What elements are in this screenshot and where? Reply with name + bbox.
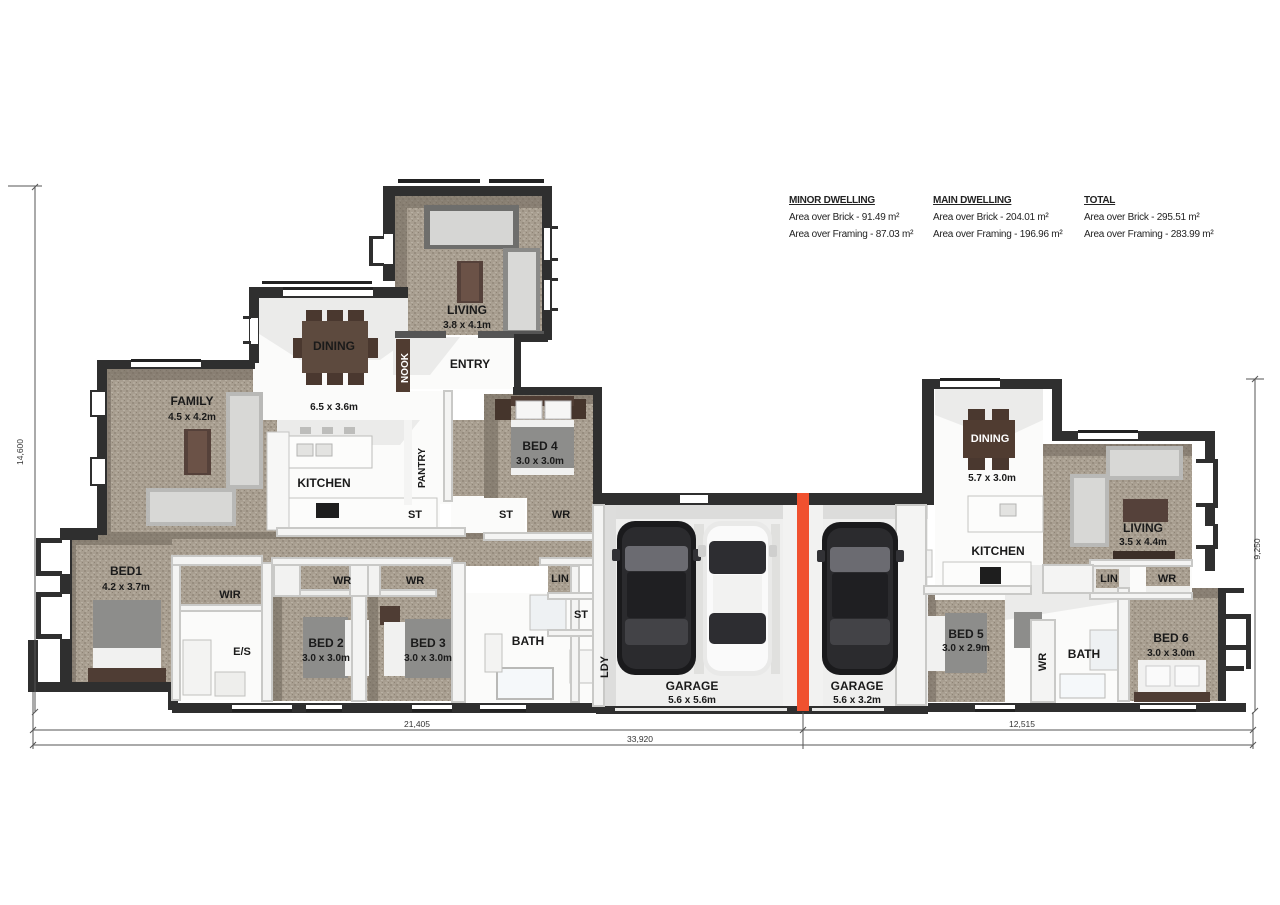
svg-text:4.2 x 3.7m: 4.2 x 3.7m <box>102 582 150 593</box>
svg-text:WR: WR <box>552 509 570 521</box>
svg-text:Area over Framing - 196.96 m²: Area over Framing - 196.96 m² <box>933 229 1063 240</box>
svg-text:3.0 x 3.0m: 3.0 x 3.0m <box>302 653 350 664</box>
svg-text:4.5 x 4.2m: 4.5 x 4.2m <box>168 412 216 423</box>
svg-text:BATH: BATH <box>512 634 544 648</box>
svg-text:3.0 x 3.0m: 3.0 x 3.0m <box>404 653 452 664</box>
svg-text:Area over Brick - 295.51 m²: Area over Brick - 295.51 m² <box>1084 212 1200 223</box>
svg-text:TOTAL: TOTAL <box>1084 195 1115 206</box>
svg-text:E/S: E/S <box>233 646 251 658</box>
svg-text:14,600: 14,600 <box>15 439 25 465</box>
svg-text:GARAGE: GARAGE <box>831 679 884 693</box>
svg-text:9,250: 9,250 <box>1252 538 1262 560</box>
svg-text:BED 3: BED 3 <box>410 636 446 650</box>
svg-text:WR: WR <box>333 575 351 587</box>
svg-text:LIVING: LIVING <box>1123 521 1163 535</box>
svg-text:BED 6: BED 6 <box>1153 631 1189 645</box>
svg-text:ST: ST <box>574 609 588 621</box>
svg-text:KITCHEN: KITCHEN <box>971 544 1024 558</box>
svg-text:ST: ST <box>499 509 513 521</box>
svg-text:12,515: 12,515 <box>1009 719 1035 729</box>
svg-text:MAIN DWELLING: MAIN DWELLING <box>933 195 1012 206</box>
svg-text:5.7 x 3.0m: 5.7 x 3.0m <box>968 473 1016 484</box>
svg-text:ENTRY: ENTRY <box>450 357 490 371</box>
svg-text:MINOR DWELLING: MINOR DWELLING <box>789 195 875 206</box>
svg-text:NOOK: NOOK <box>400 352 411 383</box>
svg-text:21,405: 21,405 <box>404 719 430 729</box>
svg-text:3.0 x 3.0m: 3.0 x 3.0m <box>516 456 564 467</box>
svg-text:BED 4: BED 4 <box>522 439 558 453</box>
svg-text:3.8 x 4.1m: 3.8 x 4.1m <box>443 320 491 331</box>
svg-text:PANTRY: PANTRY <box>417 448 428 488</box>
svg-text:5.6 x 3.2m: 5.6 x 3.2m <box>833 695 881 706</box>
svg-text:DINING: DINING <box>971 433 1010 445</box>
svg-text:6.5 x 3.6m: 6.5 x 3.6m <box>310 402 358 413</box>
svg-text:LDY: LDY <box>599 655 611 678</box>
svg-text:Area over Brick - 204.01 m²: Area over Brick - 204.01 m² <box>933 212 1049 223</box>
svg-text:DINING: DINING <box>313 339 355 353</box>
svg-text:WR: WR <box>406 575 424 587</box>
svg-text:BED1: BED1 <box>110 564 142 578</box>
svg-text:KITCHEN: KITCHEN <box>297 476 350 490</box>
svg-text:Area over Framing - 283.99 m²: Area over Framing - 283.99 m² <box>1084 229 1214 240</box>
svg-text:3.5 x 4.4m: 3.5 x 4.4m <box>1119 537 1167 548</box>
svg-text:33,920: 33,920 <box>627 734 653 744</box>
svg-text:FAMILY: FAMILY <box>171 394 214 408</box>
svg-text:WIR: WIR <box>219 589 240 601</box>
svg-text:ST: ST <box>408 509 422 521</box>
svg-text:BED 5: BED 5 <box>948 627 984 641</box>
svg-text:GARAGE: GARAGE <box>666 679 719 693</box>
svg-text:WR: WR <box>1037 653 1049 671</box>
svg-text:Area over Framing - 87.03 m²: Area over Framing - 87.03 m² <box>789 229 914 240</box>
svg-text:LIN: LIN <box>1100 573 1118 585</box>
svg-text:BED 2: BED 2 <box>308 636 344 650</box>
svg-text:LIVING: LIVING <box>447 303 487 317</box>
svg-text:3.0 x 2.9m: 3.0 x 2.9m <box>942 643 990 654</box>
svg-text:5.6 x 5.6m: 5.6 x 5.6m <box>668 695 716 706</box>
svg-text:3.0 x 3.0m: 3.0 x 3.0m <box>1147 648 1195 659</box>
svg-text:WR: WR <box>1158 573 1176 585</box>
svg-text:BATH: BATH <box>1068 647 1100 661</box>
svg-text:Area over Brick - 91.49 m²: Area over Brick - 91.49 m² <box>789 212 900 223</box>
svg-text:LIN: LIN <box>551 573 569 585</box>
